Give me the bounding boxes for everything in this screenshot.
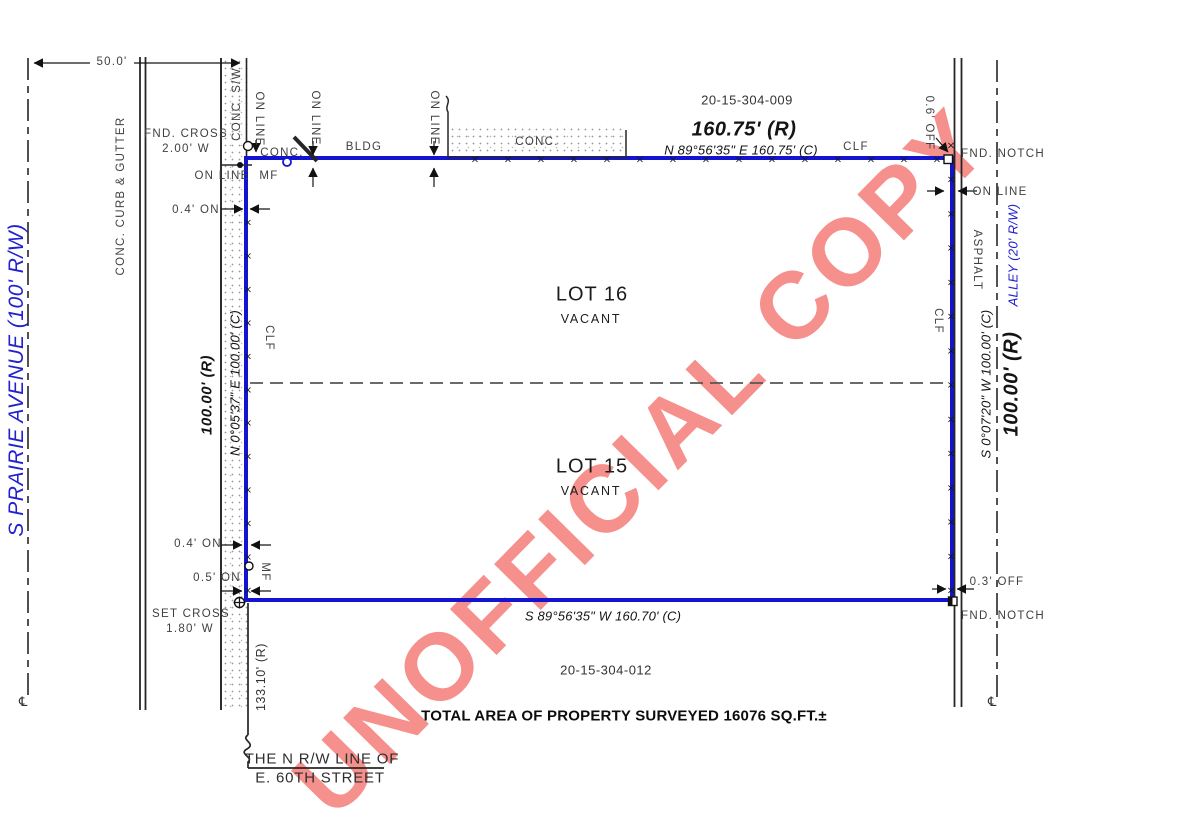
metal-fence-label-nw: MF [259,170,278,182]
fence-on-offset-sw-2: 0.5' ON [193,572,241,584]
dim-half-street-width: 50.0' [93,56,130,68]
lot16-vacant: VACANT [561,312,622,326]
fence-offset-ne: 0.6' OFF [923,96,935,151]
north-bearing: N 89°56'35" E 160.75' (C) [664,143,817,158]
chain-link-fence-label-west: CLF [263,325,275,351]
property-boundary-line [244,156,954,602]
lot15-vacant: VACANT [561,484,622,498]
concrete-pad-label: CONC. [515,136,559,148]
fence-on-offset-sw-1: 0.4' ON [174,538,222,550]
east-bearing: S 0°07'20" W 100.00' (C) [979,310,994,459]
chain-link-fence-label-east: CLF [932,308,944,334]
on-line-label-ne: ON LINE [972,186,1027,198]
found-cross-label: FND. CROSS [144,128,228,140]
parcel-pin-north: 20-15-304-009 [701,93,793,108]
west-bearing: N 0°05'37" E 100.00' (C) [228,310,243,456]
lot16-label: LOT 16 [556,284,628,307]
fence-on-offset-nw: 0.4' ON [172,204,220,216]
south-rw-line-label-2: E. 60TH STREET [255,770,385,787]
on-line-label-bldg: ON LINE [309,90,321,145]
on-line-label-nw-vertical: ON LINE [253,91,265,146]
metal-fence-label-sw: MF [259,562,271,581]
svg-text:℄: ℄ [18,695,28,710]
south-bearing: S 89°56'35" W 160.70' (C) [525,609,681,624]
set-cross-label: SET CROSS [152,608,230,620]
concrete-label-nw: CONC. [260,147,304,159]
curb-gutter-label: CONC. CURB & GUTTER [115,117,127,276]
found-cross-offset: 2.00' W [162,143,210,155]
found-notch-se: FND. NOTCH [961,610,1045,622]
fence-off-offset-se: 0.3' OFF [970,576,1025,588]
sidewalk-label: CONC. S/W [231,67,243,141]
building-label: BLDG [346,141,383,153]
south-offset-record: 133.10' (R) [254,643,268,711]
west-record-distance: 100.00' (R) [199,355,216,435]
lot15-label: LOT 15 [556,456,628,479]
parcel-pin-south: 20-15-304-012 [560,663,652,678]
found-notch-ne: FND. NOTCH [961,148,1045,160]
svg-text:℄: ℄ [987,695,997,710]
total-area-note: TOTAL AREA OF PROPERTY SURVEYED 16076 SQ… [421,708,827,725]
street-label-prairie: S PRAIRIE AVENUE (100' R/W) [5,223,29,536]
on-line-label-pad: ON LINE [428,90,440,145]
street-label-alley: ALLEY (20' R/W) [1006,204,1021,307]
north-record-distance: 160.75' (R) [692,119,797,142]
east-record-distance: 100.00' (R) [1001,332,1024,437]
chain-link-fence-label-north: CLF [843,141,869,153]
survey-plat: UNOFFICIAL COPY [0,0,1200,839]
set-cross-offset: 1.80' W [166,623,214,635]
on-line-label-nw: ON LINE [194,170,249,182]
asphalt-label: ASPHALT [971,230,983,291]
south-rw-line-label-1: THE N R/W LINE OF [245,751,399,768]
